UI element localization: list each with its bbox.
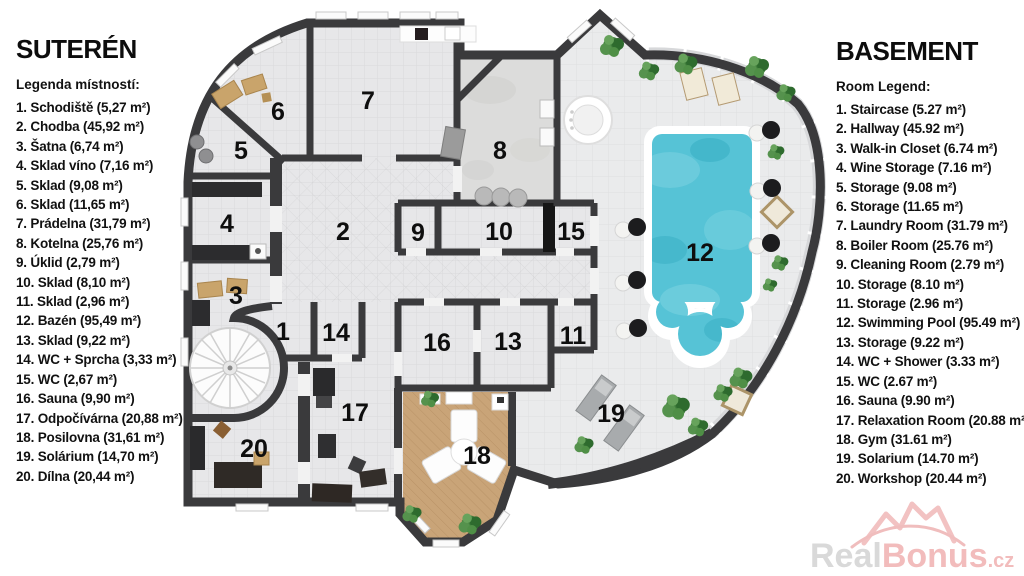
- room-label-10: 10: [485, 218, 513, 246]
- watermark-tld: .cz: [988, 550, 1015, 572]
- room-label-18: 18: [463, 442, 491, 470]
- watermark-brand-accent: Bonus: [882, 537, 988, 575]
- room-label-20: 20: [240, 435, 268, 463]
- washer-icon: [415, 28, 428, 40]
- floor-plan-page: SUTERÉN Legenda místností: 1. Schodiště …: [0, 0, 1024, 576]
- room-label-11: 11: [560, 322, 587, 350]
- room-label-7: 7: [361, 87, 375, 115]
- room-label-8: 8: [493, 137, 507, 165]
- room-label-9: 9: [411, 219, 425, 247]
- room-label-3: 3: [229, 282, 243, 310]
- room-label-14: 14: [322, 319, 350, 347]
- hot-tub: [564, 96, 612, 144]
- watermark-brand-gray: Real: [810, 537, 882, 575]
- room-label-4: 4: [220, 210, 234, 238]
- spiral-staircase-icon: [190, 328, 270, 408]
- room-label-16: 16: [423, 329, 451, 357]
- room-label-15: 15: [557, 218, 585, 246]
- watermark: RealBonus.cz: [810, 504, 1014, 575]
- room-label-17: 17: [341, 399, 369, 427]
- room-label-19: 19: [597, 400, 625, 428]
- room-label-1: 1: [276, 318, 290, 346]
- room-label-2: 2: [336, 218, 350, 246]
- room-label-12: 12: [686, 239, 714, 267]
- room-label-13: 13: [494, 328, 522, 356]
- svg-text:RealBonus.cz: RealBonus.cz: [810, 537, 1014, 575]
- room-label-6: 6: [271, 98, 285, 126]
- floor-plan: 1 2 3 4 5 6 7 8 9 10 11 12 13 14 15 16 1…: [0, 0, 1024, 576]
- room-label-5: 5: [234, 137, 248, 165]
